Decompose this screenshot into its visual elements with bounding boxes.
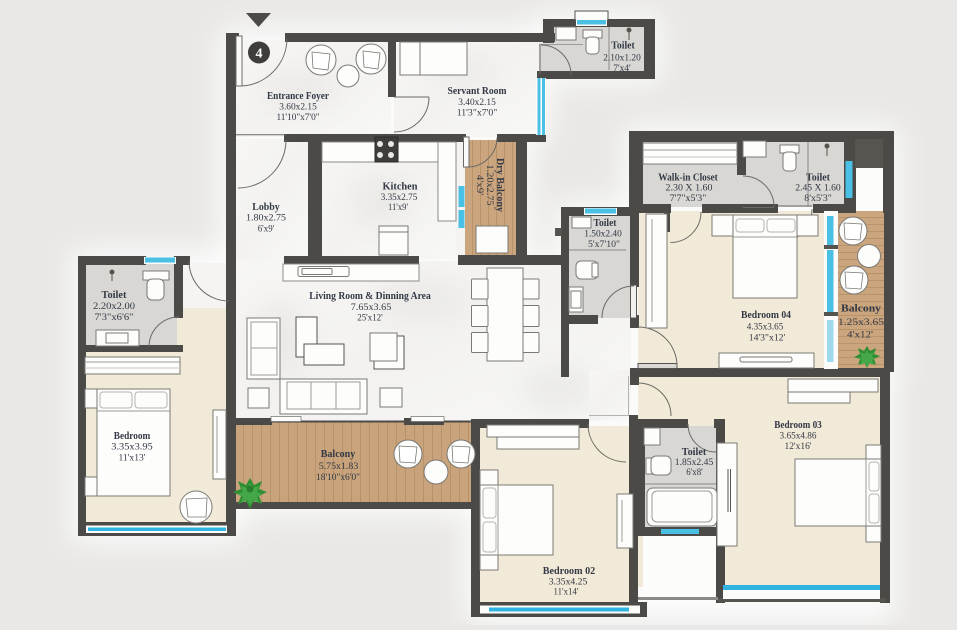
svg-text:5'x7'10": 5'x7'10" (588, 239, 620, 250)
svg-text:7'x4': 7'x4' (613, 63, 631, 74)
svg-text:Toilet: Toilet (611, 40, 635, 52)
svg-text:Entrance Foyer: Entrance Foyer (267, 90, 329, 102)
svg-text:4'x9': 4'x9' (474, 175, 485, 196)
svg-text:1.50x2.40: 1.50x2.40 (584, 229, 622, 240)
svg-text:Servant Room: Servant Room (448, 85, 507, 97)
svg-text:2.10x1.20: 2.10x1.20 (603, 53, 641, 64)
svg-text:2.45 X 1.60: 2.45 X 1.60 (795, 183, 841, 194)
svg-text:Toilet: Toilet (594, 217, 617, 229)
svg-text:Kitchen: Kitchen (383, 181, 418, 193)
svg-text:Balcony: Balcony (321, 448, 356, 460)
svg-text:3.35x3.95: 3.35x3.95 (111, 442, 153, 453)
svg-text:Bedroom: Bedroom (114, 430, 151, 442)
svg-text:6'x8': 6'x8' (686, 467, 703, 478)
svg-text:Bedroom 04: Bedroom 04 (741, 309, 791, 321)
svg-text:11'x9': 11'x9' (388, 202, 408, 213)
svg-text:7'7"x5'3": 7'7"x5'3" (670, 193, 707, 204)
svg-text:4.35x3.65: 4.35x3.65 (747, 322, 784, 333)
svg-text:Living Room & Dinning Area: Living Room & Dinning Area (309, 290, 431, 302)
svg-text:1.25x3.65: 1.25x3.65 (838, 317, 884, 328)
svg-text:6'x9': 6'x9' (258, 224, 275, 235)
svg-text:Balcony: Balcony (841, 303, 882, 315)
svg-text:7'3"x6'6": 7'3"x6'6" (95, 312, 134, 323)
svg-text:4: 4 (256, 47, 263, 62)
svg-text:2.30 X 1.60: 2.30 X 1.60 (666, 183, 713, 194)
svg-text:11'10"x7'0": 11'10"x7'0" (277, 112, 320, 123)
svg-text:3.60x2.15: 3.60x2.15 (279, 102, 317, 113)
svg-text:8'x5'3": 8'x5'3" (804, 193, 832, 204)
svg-text:25'x12': 25'x12' (357, 313, 383, 324)
svg-text:Bedroom 03: Bedroom 03 (774, 419, 822, 431)
svg-text:5.75x1.83: 5.75x1.83 (319, 461, 359, 472)
svg-text:4'x12': 4'x12' (847, 330, 873, 341)
svg-text:18'10"x6'0": 18'10"x6'0" (316, 472, 360, 483)
svg-text:Bedroom 02: Bedroom 02 (543, 565, 596, 577)
svg-text:3.65x4.86: 3.65x4.86 (780, 431, 817, 442)
svg-text:11'x14': 11'x14' (554, 587, 579, 598)
svg-text:Lobby: Lobby (252, 201, 280, 213)
svg-text:Toilet: Toilet (102, 289, 127, 301)
svg-text:11'x13': 11'x13' (119, 453, 146, 464)
svg-text:2.20x2.00: 2.20x2.00 (93, 301, 135, 312)
svg-text:1.80x2.75: 1.80x2.75 (246, 213, 286, 224)
svg-text:11'3"x7'0": 11'3"x7'0" (457, 108, 498, 119)
svg-text:3.40x2.15: 3.40x2.15 (458, 97, 496, 108)
svg-text:7.65x3.65: 7.65x3.65 (351, 302, 392, 313)
svg-text:14'3"x12': 14'3"x12' (749, 333, 786, 344)
svg-text:12'x16': 12'x16' (785, 441, 812, 452)
